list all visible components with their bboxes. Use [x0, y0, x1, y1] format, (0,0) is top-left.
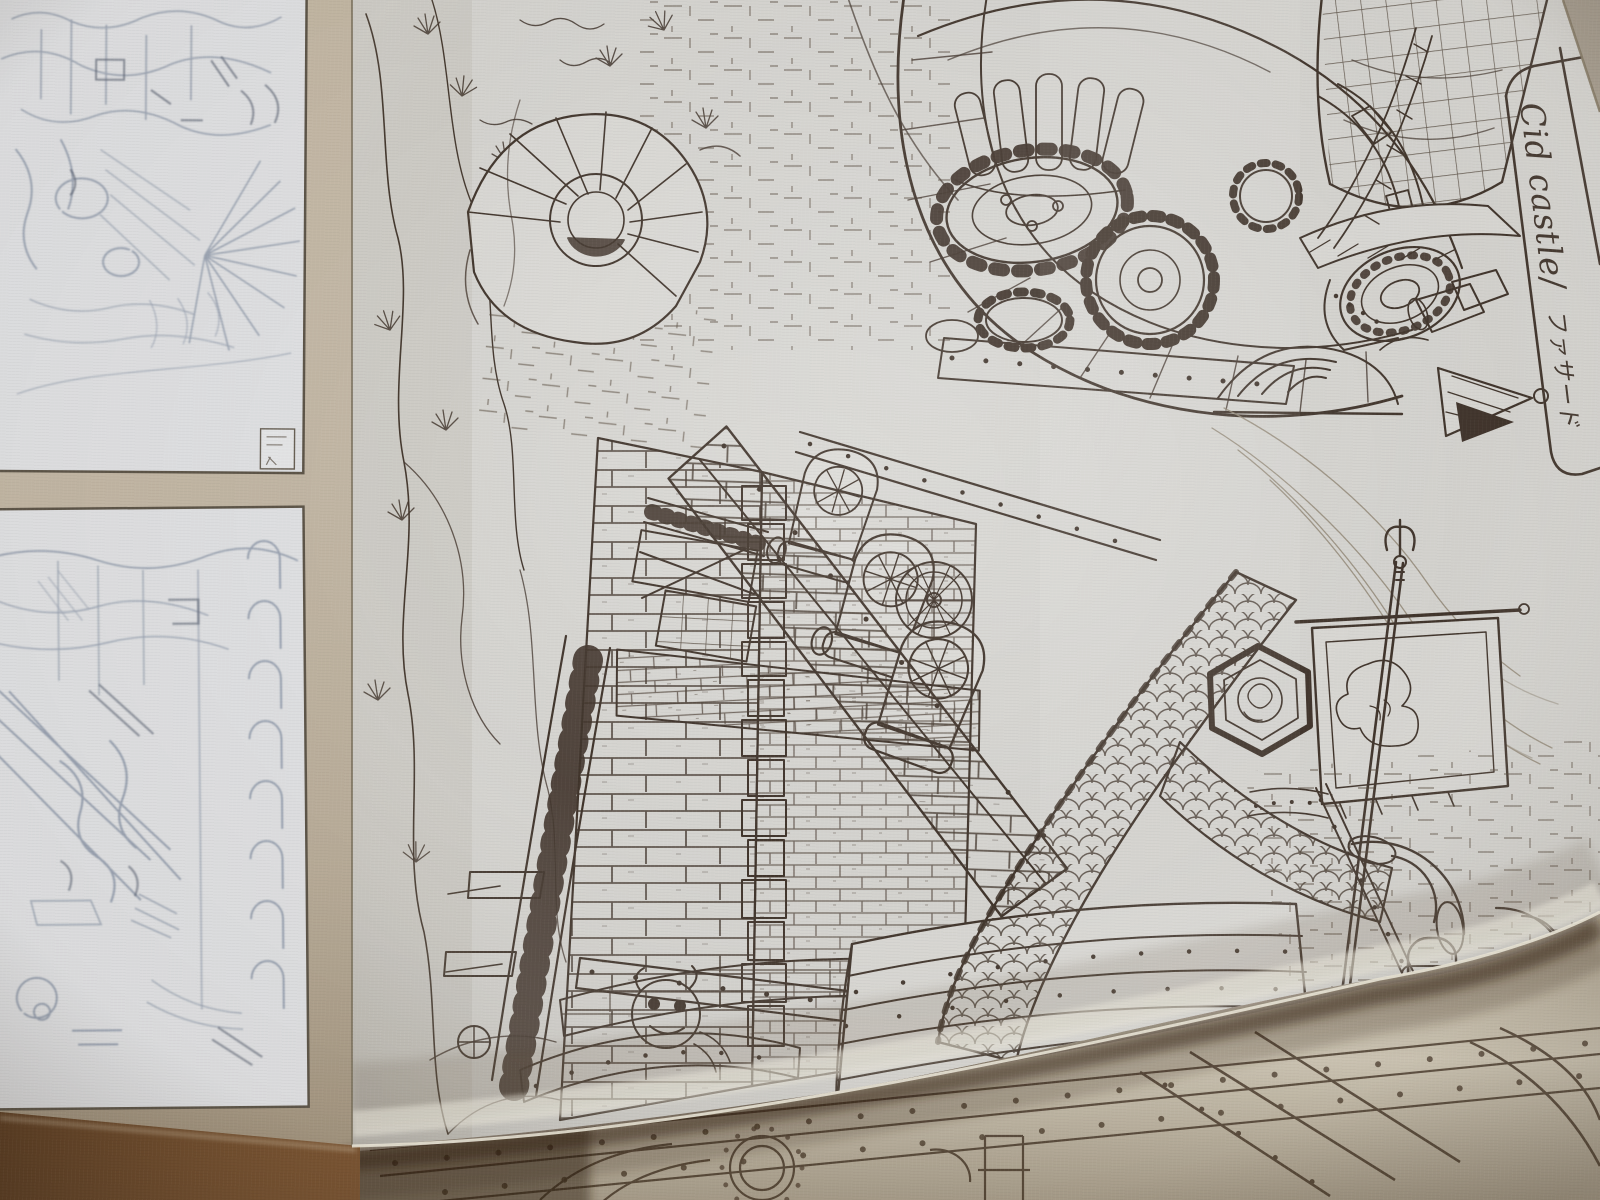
photo-vignette [0, 0, 1600, 1200]
book-photo: Cid castle/ ファサード [0, 0, 1600, 1200]
scene: Cid castle/ ファサード [0, 0, 1600, 1200]
